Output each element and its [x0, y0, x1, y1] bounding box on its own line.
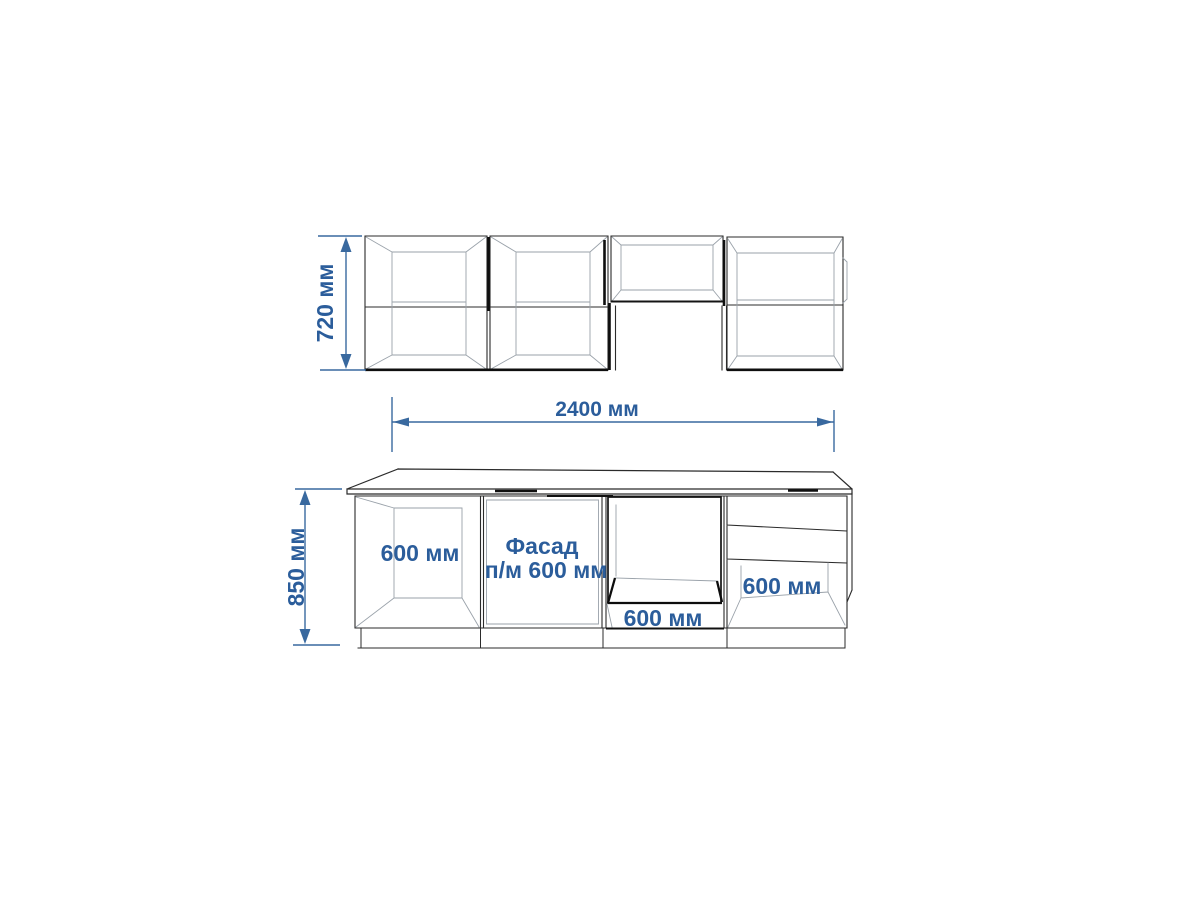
kitchen-drawing-canvas: 720 мм 2400 мм 850 мм 600 мм Фасад п/м 6… — [0, 0, 1201, 900]
drawer-cabinet-label: 600 мм — [743, 573, 822, 599]
oven-cabinet-label: 600 мм — [624, 605, 703, 631]
facade-label-line2: п/м 600 мм — [485, 557, 607, 583]
dimension-wall-height-group: 720 мм — [312, 236, 366, 370]
arrow-down-icon — [300, 629, 311, 644]
dimension-total-width-group: 2400 мм — [392, 397, 834, 452]
wall-cabinets-group — [365, 236, 847, 370]
arrow-down-icon — [341, 354, 352, 369]
countertop-edge-accents — [495, 491, 818, 492]
wall-cabinet-shadow-lines — [365, 237, 843, 370]
total-width-dimension-label: 2400 мм — [555, 398, 639, 421]
facade-label-line1: Фасад — [506, 533, 579, 559]
arrow-right-icon — [817, 418, 833, 427]
arrow-up-icon — [341, 237, 352, 252]
wall-height-dimension-label: 720 мм — [312, 264, 338, 343]
oven-niche-outline — [608, 497, 721, 603]
plinth-group — [358, 628, 845, 648]
wall-cabinet-interior-lines — [366, 237, 847, 369]
base-height-dimension-label: 850 мм — [283, 528, 309, 607]
plinth-lines — [358, 628, 845, 648]
cabinet-labels-group: 600 мм Фасад п/м 600 мм 600 мм 600 мм — [381, 533, 822, 631]
drawing-page: 720 мм 2400 мм 850 мм 600 мм Фасад п/м 6… — [0, 0, 1201, 900]
countertop-group — [347, 469, 852, 494]
arrow-up-icon — [300, 490, 311, 505]
base-open-cabinet-label: 600 мм — [381, 540, 460, 566]
dimension-base-height-group: 850 мм — [283, 489, 342, 645]
countertop-outline — [347, 469, 852, 494]
oven-niche-floor — [608, 578, 722, 603]
arrow-left-icon — [393, 418, 409, 427]
